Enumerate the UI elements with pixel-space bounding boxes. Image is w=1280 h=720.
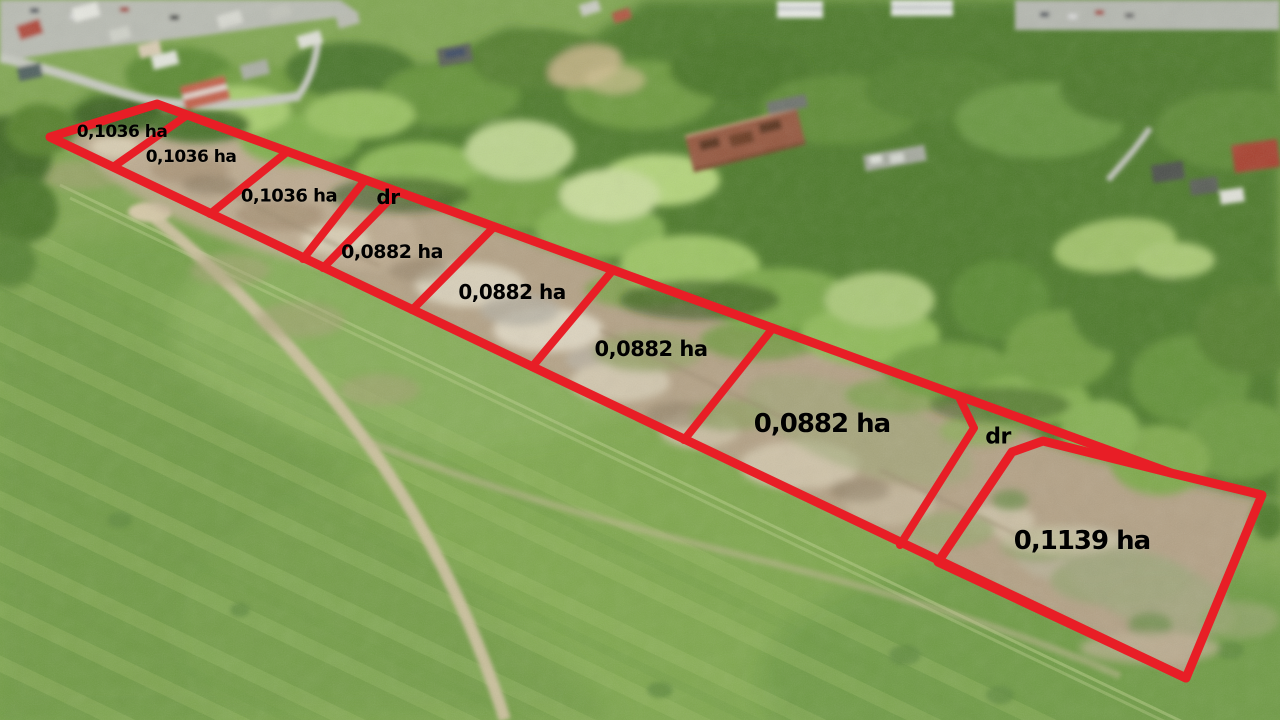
road-label: dr (376, 185, 399, 209)
plot-area-label: 0,1036 ha (241, 186, 337, 207)
aerial-photo: 0,1036 ha 0,1036 ha 0,1036 ha dr 0,0882 … (0, 0, 1280, 720)
plot-area-label: 0,0882 ha (341, 241, 443, 263)
plot-area-label: 0,1036 ha (146, 147, 237, 167)
plot-area-label: 0,0882 ha (595, 337, 708, 361)
plot-area-label: 0,0882 ha (458, 280, 565, 304)
road-label: dr (985, 425, 1011, 450)
plot-area-label: 0,1036 ha (77, 122, 168, 142)
plot-area-label: 0,1139 ha (1014, 526, 1150, 556)
plot-area-label: 0,0882 ha (754, 409, 890, 439)
